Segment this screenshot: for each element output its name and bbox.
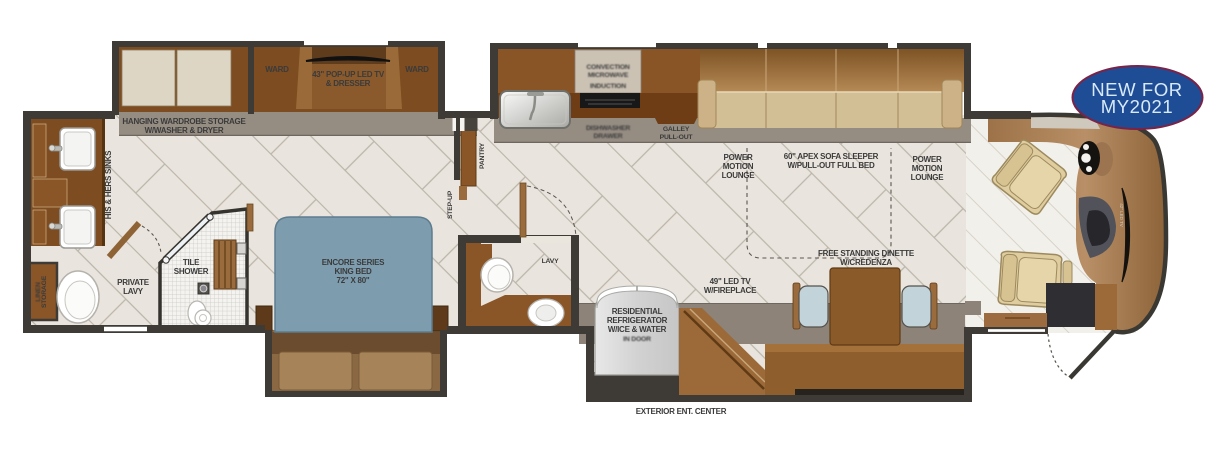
svg-text:W/ICE & WATER: W/ICE & WATER xyxy=(608,325,667,334)
svg-text:LAVY: LAVY xyxy=(542,258,559,265)
svg-text:IN DOOR: IN DOOR xyxy=(623,336,651,343)
svg-text:43" POP-UP LED TV: 43" POP-UP LED TV xyxy=(312,70,385,79)
svg-text:DRAWER: DRAWER xyxy=(593,133,622,140)
svg-text:FREE STANDING DINETTE: FREE STANDING DINETTE xyxy=(818,249,915,258)
svg-text:HIS & HERS SINKS: HIS & HERS SINKS xyxy=(104,150,113,219)
svg-text:MY2021: MY2021 xyxy=(1101,96,1174,117)
svg-text:PULL-OUT: PULL-OUT xyxy=(660,134,694,141)
svg-text:KING BED: KING BED xyxy=(334,267,372,276)
svg-text:TILE: TILE xyxy=(183,258,200,267)
svg-text:STEP-UP: STEP-UP xyxy=(447,190,454,219)
svg-text:POWER: POWER xyxy=(724,153,753,162)
svg-text:PANTRY: PANTRY xyxy=(479,142,486,169)
svg-text:& DRESSER: & DRESSER xyxy=(326,79,371,88)
svg-text:W/CREDENZA: W/CREDENZA xyxy=(840,258,892,267)
svg-text:GALLEY: GALLEY xyxy=(663,126,690,133)
svg-text:DISHWASHER: DISHWASHER xyxy=(586,125,630,132)
svg-text:72" X 80": 72" X 80" xyxy=(337,276,370,285)
svg-text:60" APEX SOFA SLEEPER: 60" APEX SOFA SLEEPER xyxy=(784,152,879,161)
svg-text:HANGING WARDROBE STORAGE: HANGING WARDROBE STORAGE xyxy=(122,117,246,126)
svg-text:LAVY: LAVY xyxy=(123,287,144,296)
svg-text:PRIVATE: PRIVATE xyxy=(117,278,150,287)
svg-text:42" LED TV: 42" LED TV xyxy=(1119,203,1124,227)
svg-text:ENCORE SERIES: ENCORE SERIES xyxy=(322,258,385,267)
svg-text:MOTION: MOTION xyxy=(723,162,754,171)
svg-text:RESIDENTIAL: RESIDENTIAL xyxy=(612,307,663,316)
svg-text:WARD: WARD xyxy=(265,65,289,74)
svg-text:MICROWAVE: MICROWAVE xyxy=(588,72,629,79)
svg-text:49" LED TV: 49" LED TV xyxy=(710,277,752,286)
svg-text:REFRIGERATOR: REFRIGERATOR xyxy=(607,316,668,325)
svg-text:EXTERIOR ENT. CENTER: EXTERIOR ENT. CENTER xyxy=(636,407,727,416)
svg-text:MOTION: MOTION xyxy=(912,164,943,173)
svg-text:WARD: WARD xyxy=(405,65,429,74)
svg-text:INDUCTION: INDUCTION xyxy=(590,83,626,90)
svg-text:LOUNGE: LOUNGE xyxy=(722,171,756,180)
svg-text:SHOWER: SHOWER xyxy=(174,267,209,276)
svg-text:POWER: POWER xyxy=(913,155,942,164)
svg-text:LOUNGE: LOUNGE xyxy=(911,173,945,182)
svg-text:W/PULL-OUT FULL BED: W/PULL-OUT FULL BED xyxy=(787,161,875,170)
svg-text:STORAGE: STORAGE xyxy=(41,275,48,308)
svg-text:W/FIREPLACE: W/FIREPLACE xyxy=(704,286,757,295)
svg-text:W/WASHER & DRYER: W/WASHER & DRYER xyxy=(145,126,224,135)
svg-text:CONVECTION: CONVECTION xyxy=(586,64,630,71)
